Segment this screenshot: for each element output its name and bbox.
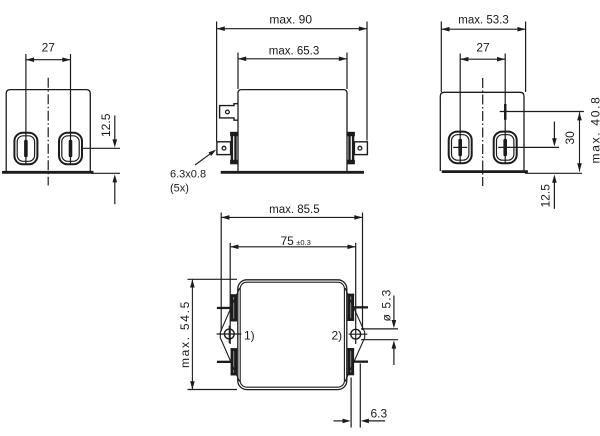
svg-text:12.5: 12.5 [539, 184, 553, 208]
svg-text:27: 27 [42, 41, 56, 55]
svg-text:ø 5.3: ø 5.3 [380, 289, 394, 322]
svg-text:max. 40.8: max. 40.8 [588, 96, 600, 164]
svg-text:(5x): (5x) [170, 183, 189, 195]
svg-text:max. 90: max. 90 [269, 13, 312, 27]
svg-text:2): 2) [332, 328, 343, 342]
svg-text:6.3x0.8: 6.3x0.8 [170, 169, 206, 181]
svg-text:max. 65.3: max. 65.3 [269, 46, 320, 58]
svg-text:6.3: 6.3 [370, 407, 387, 421]
svg-text:1): 1) [244, 329, 255, 343]
svg-text:max. 85.5: max. 85.5 [269, 204, 320, 216]
svg-text:27: 27 [476, 41, 490, 55]
svg-text:12.5: 12.5 [99, 113, 113, 137]
svg-text:30: 30 [563, 131, 577, 145]
svg-text:max. 54.5: max. 54.5 [178, 300, 192, 368]
svg-text:max. 53.3: max. 53.3 [458, 14, 509, 26]
